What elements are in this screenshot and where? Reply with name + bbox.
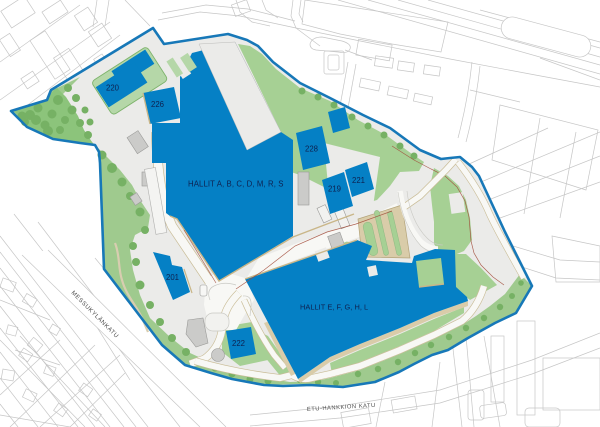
svg-text:228: 228	[305, 145, 318, 154]
svg-text:226: 226	[151, 100, 164, 109]
svg-text:HALLIT A, B, C, D, M, R, S: HALLIT A, B, C, D, M, R, S	[188, 180, 284, 189]
svg-text:201: 201	[166, 273, 179, 282]
svg-text:HALLIT E, F, G, H, L: HALLIT E, F, G, H, L	[300, 303, 368, 312]
svg-text:222: 222	[232, 339, 245, 348]
svg-text:221: 221	[352, 176, 365, 185]
svg-text:220: 220	[106, 84, 120, 93]
svg-text:219: 219	[328, 185, 341, 194]
